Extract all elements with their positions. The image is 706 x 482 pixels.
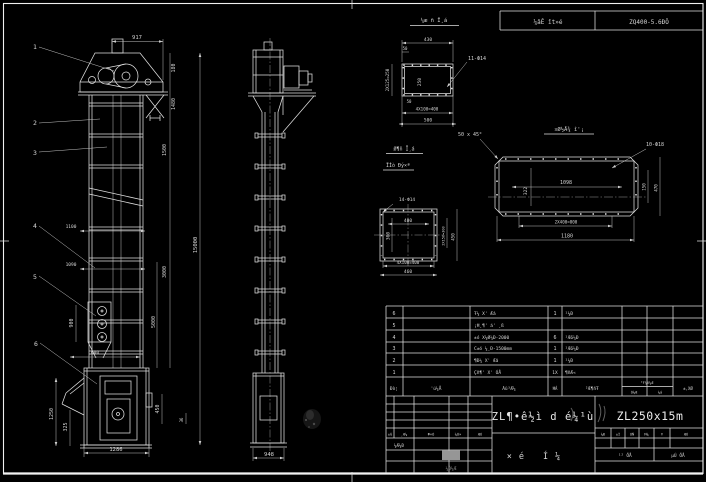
bom-header-no: Ðò¦ (390, 385, 398, 392)
hole-note-11: 11-Ф14 (468, 56, 486, 62)
bom-no: 1 (392, 370, 395, 376)
dim-460: 460 (404, 269, 412, 275)
dim-1480: 1480 (171, 98, 177, 110)
signature-label: ¼Æ¼Ð (394, 443, 405, 449)
bom-no: 5 (392, 323, 395, 329)
dim-1500: 1500 (162, 144, 168, 156)
cad-canvas: ¼âÊ ît»é ZQ400-5.6ÐÖ (0, 0, 706, 482)
bom-qty: 1 (553, 346, 556, 352)
dim-300-inner: 300 (386, 232, 392, 240)
bom-header-row: Ðò¦ 'ú¼Å Ãû³Æ¼ ĦÁ ²Æ¶ñŦ ¹Ŧ¼X¼Æ Ó¼Æ ¼á ±,… (390, 381, 693, 396)
right-cell: Ŧ (661, 433, 664, 437)
hole-note-14: 14-Ф14 (399, 197, 416, 203)
bom-mat: ¹Æ6¼Ð (565, 335, 579, 341)
chamfer-note: 50 x 45° (458, 132, 482, 138)
rev-cell: ¸Æ¼ (401, 433, 408, 438)
side-view: 948 (248, 38, 316, 461)
gray-note: ¼Ó¼Æ (446, 465, 457, 472)
dim-600: 600 (91, 350, 99, 356)
dim-400-inner: 400 (404, 218, 412, 224)
dim-150: 150 (642, 183, 647, 191)
bom-header-name: Ãû³Æ¼ (502, 385, 516, 392)
dim-1100: 1100 (66, 224, 77, 230)
detail-top-flange: ¼æ ñ Ī¸á 430 50 2X125=250 250 11-Ф14 50 … (385, 17, 486, 127)
dim-180: 180 (171, 63, 177, 72)
hole-note-10: 10-Ф18 (646, 142, 664, 148)
drawing-subtitle: ×é Í¼ (507, 450, 568, 462)
bom-name: C±ó ¼¸Ð-1500mm (474, 345, 512, 352)
highlight-cell (442, 451, 460, 461)
right-header-cells: ¼Ð ±Ì ÓÑ Ħ¼ Ŧ ÆÚ (601, 432, 688, 438)
dim-1098: 1098 (560, 180, 572, 186)
bom-header-unit-weight: Ó¼Æ (631, 390, 638, 396)
dim-470: 470 (654, 184, 659, 192)
bom-row-5: 5 ¡Ħ¸¶' á' ¸ß (392, 322, 504, 329)
detail-inlet-flange: Ø¶ñ Ī¸á ÏÍò Ðý×ª 14-Ф14 400 300 2X150=30… (374, 146, 457, 276)
bom-no: 6 (392, 311, 395, 317)
dim-1250: 1250 (49, 408, 55, 420)
dim-1180: 1180 (561, 234, 573, 240)
rev-cell: ±Ǧ (388, 432, 392, 437)
balloon-3: 3 (33, 149, 37, 157)
balloon-4: 4 (33, 222, 37, 230)
header-left-label: ¼âÊ ît»é (534, 18, 563, 26)
bom-qty: 1 (553, 358, 556, 364)
gearbox-model-label: ZQ400-5.6ÐÖ (629, 19, 669, 26)
bom-header-weight: ¹Ŧ¼X¼Æ (641, 381, 655, 386)
model-designation: ZL250x15m (617, 409, 684, 423)
bom-row-4: 4 ±ó X¼Ø¼Ð-2000 6 ¹Æ6¼Ð (392, 334, 578, 341)
dim-325: 325 (63, 422, 69, 431)
dim-500: 500 (424, 118, 432, 124)
bom-header-remark: ±,XØ (683, 386, 693, 391)
bom-name: ¶Ð¼ X' Æâ (474, 357, 499, 364)
balloon-5: 5 (33, 273, 37, 281)
dim-2x125: 2X125=250 (385, 68, 390, 91)
right-cell: ÓÑ (630, 432, 634, 437)
detail-outlet-title: ¤Ø½Å¾ î'¡ (554, 126, 584, 133)
title-block: ±Ǧ ¸Æ¼ Ф×Ó ¼Ó× ÆÚ ¼Æ¼Ð ¼Ó¼Æ ZL¶•ê½ì d é¼… (386, 396, 703, 473)
bom-mat: ¹¼Ð (565, 311, 573, 317)
right-cell: ¼Ð (601, 433, 605, 438)
balloon-2: 2 (33, 119, 37, 127)
detail-top-title: ¼æ ñ Ī¸á (421, 17, 448, 24)
bom-name: Çñ¶' X' ÓÅ (474, 369, 501, 376)
bom-row-6: 6 Ŧ¼ X' Æâ 1 ¹¼Ð (392, 310, 573, 317)
bom-mat: ¹Æ6¼Ð (565, 346, 579, 352)
bom-qty: 6 (553, 335, 556, 341)
bom-header-material: ²Æ¶ñŦ (585, 386, 599, 392)
rev-cell: ÆÚ (478, 432, 482, 437)
dim-head-width: 917 (132, 35, 142, 41)
bom-mat: ¶ñÆ« (565, 370, 576, 376)
bom-row-3: 3 C±ó ¼¸Ð-1500mm 1 ¹Æ6¼Ð (392, 345, 578, 352)
dim-900: 900 (69, 318, 75, 327)
rev-cell: Ф×Ó (428, 432, 435, 437)
smudge-artifact (303, 409, 321, 429)
bom-header-total-weight: ¼á (658, 391, 662, 396)
dim-36: 36 (179, 417, 184, 422)
bom-qty: 1 (553, 311, 556, 317)
bom-row-2: 2 ¶Ð¼ X' Æâ 1 ¹¼Ð (392, 357, 573, 364)
right-cell: Ħ¼ (644, 433, 648, 438)
dim-450-detail: 450 (451, 233, 456, 241)
detail-outlet-flange: ¤Ø½Å¾ î'¡ 50 x 45° 1098 322 10-Ф18 150 4… (458, 126, 664, 242)
bom-qty: 1X (552, 370, 558, 376)
bom-name: ±ó X¼Ø¼Ð-2000 (474, 334, 510, 341)
right-cell: ±Ì (616, 432, 620, 437)
dim-4x100: 4X100=400 (416, 107, 439, 112)
detail-inlet-title-1: Ø¶ñ Ī¸á (393, 146, 414, 153)
sheet-number-label: µÚ ÕÅ (671, 452, 685, 459)
dim-3000: 3000 (162, 266, 168, 278)
dim-side-base: 948 (264, 452, 274, 458)
bom-header-qty: ĦÁ (553, 386, 558, 391)
bom-no: 2 (392, 358, 395, 364)
dim-overall-height: 15000 (193, 237, 199, 254)
dim-450: 450 (155, 404, 161, 413)
dim-2x150: 2X150=300 (442, 226, 446, 245)
dim-50-top: 50 (403, 46, 408, 51)
bom-row-1: 1 Çñ¶' X' ÓÅ 1X ¶ñÆ« (392, 369, 576, 376)
cad-drawing-sheet: ¼âÊ ît»é ZQ400-5.6ÐÖ (0, 0, 706, 482)
bom-name: ¡Ħ¸¶' á' ¸ß (474, 322, 504, 329)
sheet-total-label: ¹² ÕÅ (618, 452, 632, 459)
bom-name: Ŧ¼ X' Æâ (474, 310, 496, 317)
dim-2x400: 2X400=800 (555, 220, 578, 225)
dim-5000: 5000 (151, 316, 157, 328)
right-cell: ÆÚ (684, 432, 688, 437)
dim-250-inner: 250 (417, 78, 423, 86)
bom-header-code: 'ú¼Å (431, 385, 442, 392)
balloon-1: 1 (33, 43, 37, 51)
bom-no: 3 (392, 346, 395, 352)
dim-322: 322 (523, 187, 529, 195)
front-view (62, 39, 168, 448)
detail-inlet-title-2: ÏÍò Ðý×ª (386, 161, 410, 169)
drawing-header-strip: ¼âÊ ît»é ZQ400-5.6ÐÖ (500, 11, 703, 30)
dim-50-bottom: 50 (407, 99, 412, 104)
bom-mat: ¹¼Ð (565, 358, 573, 364)
drawing-title: ZL¶•ê½ì d é¼¹ù (492, 411, 595, 423)
bom-no: 4 (392, 335, 395, 341)
rev-cell: ¼Ó× (455, 432, 462, 438)
dim-430: 430 (424, 37, 432, 43)
dim-1090: 1090 (66, 262, 77, 268)
dim-base-width: 1286 (109, 447, 122, 453)
sheet-frame (0, 0, 706, 482)
balloon-6: 6 (34, 340, 38, 348)
dim-4x100-inlet: 4X100=400 (397, 260, 420, 265)
